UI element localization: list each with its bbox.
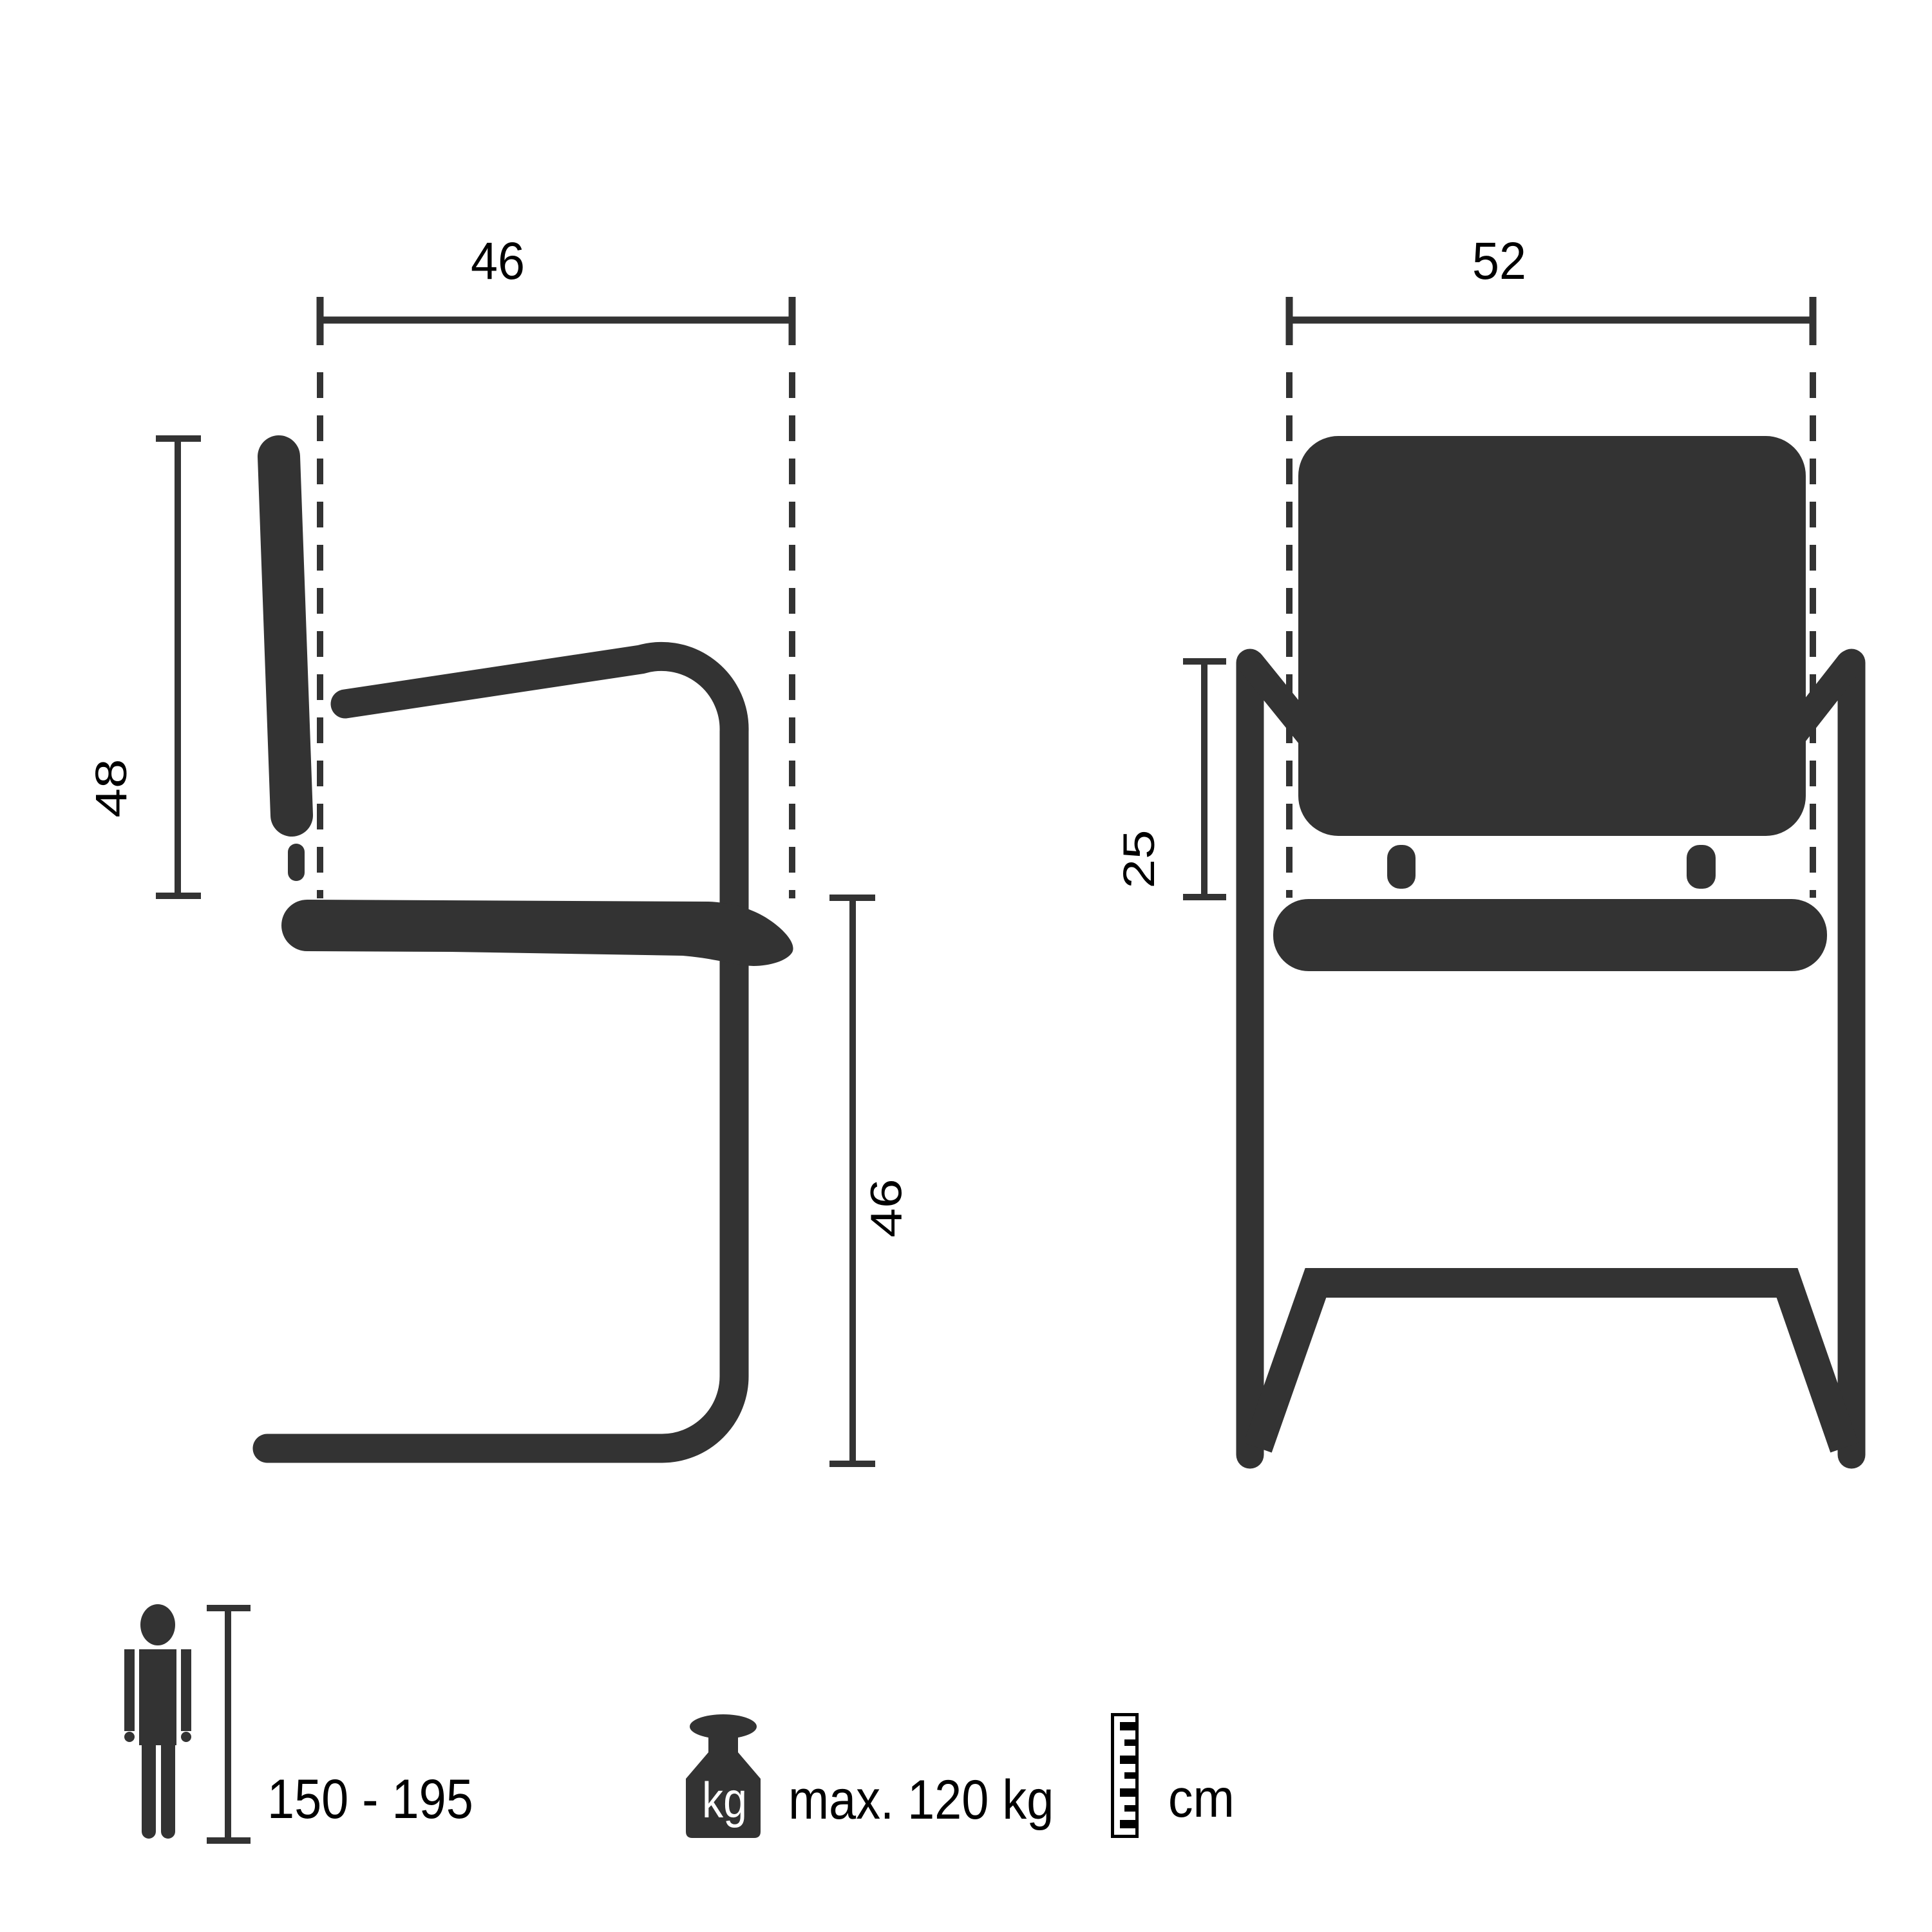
svg-text:max. 120 kg: max. 120 kg [788, 1770, 1054, 1832]
svg-text:46: 46 [862, 1179, 911, 1237]
svg-text:kg: kg [702, 1772, 747, 1828]
svg-text:25: 25 [1114, 829, 1164, 888]
svg-text:46: 46 [471, 231, 525, 290]
svg-text:48: 48 [86, 759, 136, 817]
svg-text:150 - 195: 150 - 195 [267, 1769, 473, 1831]
svg-text:52: 52 [1472, 231, 1526, 290]
svg-text:cm: cm [1168, 1768, 1235, 1829]
